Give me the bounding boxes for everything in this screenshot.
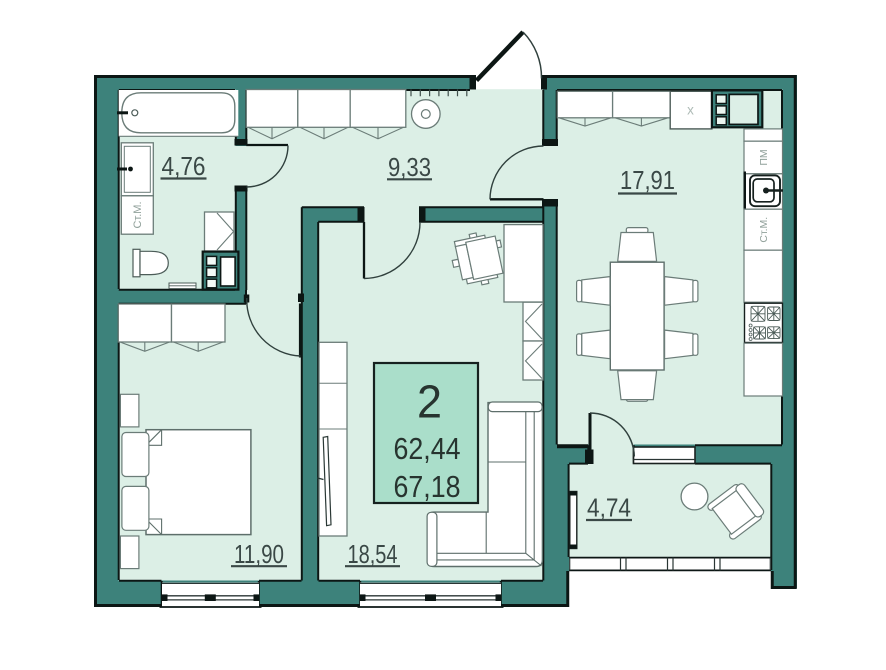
- svg-text:62,44: 62,44: [394, 431, 461, 466]
- svg-text:17,91: 17,91: [620, 165, 675, 195]
- svg-text:2: 2: [417, 376, 442, 428]
- svg-text:Ст.М.: Ст.М.: [132, 201, 144, 228]
- svg-text:Ст.М.: Ст.М.: [758, 217, 770, 243]
- svg-text:4,74: 4,74: [587, 493, 631, 523]
- svg-text:ПМ: ПМ: [758, 149, 770, 165]
- svg-text:4,76: 4,76: [162, 151, 206, 181]
- svg-text:x: x: [687, 103, 694, 118]
- svg-text:11,90: 11,90: [234, 539, 284, 569]
- svg-text:9,33: 9,33: [388, 152, 431, 182]
- svg-text:67,18: 67,18: [394, 469, 461, 504]
- svg-text:18,54: 18,54: [348, 539, 398, 569]
